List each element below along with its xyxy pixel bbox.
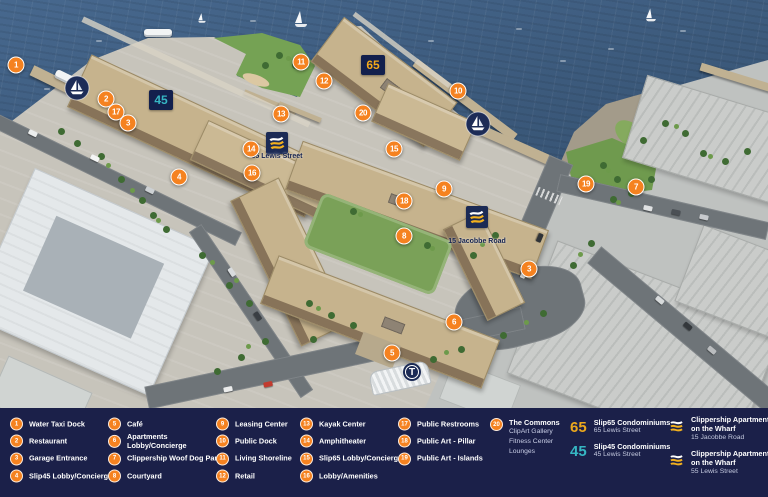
legend-label: Leasing Center <box>235 419 288 428</box>
legend-label: Courtyard <box>127 471 162 480</box>
marina-sailboat-badge <box>465 111 491 137</box>
label-55-lewis-street: 55 Lewis Street <box>252 153 303 160</box>
legend-number-icon: 20 <box>490 418 503 431</box>
site-map: T 55 Lewis Street 15 Jacobbe Road 4565 1… <box>0 0 768 408</box>
legend-label: The CommonsClipArt GalleryFitness Center… <box>509 418 560 457</box>
legend-item-1: 1Water Taxi Dock <box>10 418 85 431</box>
legend-item-19: 19Public Art - Islands <box>398 452 483 465</box>
wave-sparkle <box>516 28 522 30</box>
legend-label: Garage Entrance <box>29 454 87 463</box>
legend-number-icon: 3 <box>10 452 23 465</box>
legend-number-icon: 5 <box>108 418 121 431</box>
legend-label: Water Taxi Dock <box>29 419 85 428</box>
legend-number-icon: 17 <box>398 418 411 431</box>
legend-label: Lobby/Amenities <box>319 471 378 480</box>
legend-label: Restaurant <box>29 436 67 445</box>
legend-label: ApartmentsLobby/Concierge <box>127 432 187 450</box>
legend-label: Café <box>127 419 143 428</box>
clippership-entry-text: Clippership Apartmentson the Wharf15 Jac… <box>691 415 768 443</box>
legend-slip65-entry: 65 Slip65 Condominiums65 Lewis Street <box>570 418 670 436</box>
map-marker-7[interactable]: 7 <box>628 179 645 196</box>
legend-item-12: 12Retail <box>216 470 255 483</box>
legend-item-11: 11Living Shoreline <box>216 452 292 465</box>
legend-clippership-entry-1: Clippership Apartmentson the Wharf15 Jac… <box>668 415 768 443</box>
slip45-code: 45 <box>570 444 587 459</box>
wave-sparkle <box>96 40 102 42</box>
legend-label: Retail <box>235 471 255 480</box>
legend-item-7: 7Clippership Woof Dog Park <box>108 452 221 465</box>
wave-sparkle <box>428 40 434 42</box>
roof-label-65: 65 <box>361 55 385 75</box>
legend-item-14: 14Amphitheater <box>300 435 366 448</box>
legend-number-icon: 10 <box>216 435 229 448</box>
clippership-entry-text: Clippership Apartmentson the Wharf55 Lew… <box>691 449 768 477</box>
site-plan-page: T 55 Lewis Street 15 Jacobbe Road 4565 1… <box>0 0 768 497</box>
legend-number-icon: 9 <box>216 418 229 431</box>
legend-label: Slip65 Lobby/Concierge <box>319 454 402 463</box>
legend-label: Clippership Woof Dog Park <box>127 454 221 463</box>
wave-sparkle <box>250 20 256 22</box>
slip65-name: Slip65 Condominiums65 Lewis Street <box>594 418 671 436</box>
clippership-flag-icon <box>668 418 685 439</box>
legend-item-9: 9Leasing Center <box>216 418 288 431</box>
legend-item-2: 2Restaurant <box>10 435 67 448</box>
trees <box>0 0 5 5</box>
map-marker-9[interactable]: 9 <box>436 181 453 198</box>
legend-item-4: 4Slip45 Lobby/Concierge <box>10 470 112 483</box>
slip45-address: 45 Lewis Street <box>594 451 671 460</box>
clippership-flag-icon <box>266 132 288 154</box>
legend-item-16: 16Lobby/Amenities <box>300 470 378 483</box>
wave-sparkle <box>608 48 614 50</box>
map-marker-12[interactable]: 12 <box>316 73 333 90</box>
clippership-address: 55 Lewis Street <box>691 468 768 477</box>
map-marker-11[interactable]: 11 <box>293 54 310 71</box>
map-marker-18[interactable]: 18 <box>396 193 413 210</box>
map-marker-19[interactable]: 19 <box>578 176 595 193</box>
roof-label-45: 45 <box>149 90 173 110</box>
legend-number-icon: 12 <box>216 470 229 483</box>
legend-item-6: 6ApartmentsLobby/Concierge <box>108 432 187 450</box>
legend-item-5: 5Café <box>108 418 143 431</box>
legend-item-8: 8Courtyard <box>108 470 162 483</box>
wave-sparkle <box>680 30 686 32</box>
white-building-courtyard <box>23 216 164 339</box>
legend-item-18: 18Public Art - Pillar <box>398 435 476 448</box>
legend-label: Public Art - Pillar <box>417 436 476 445</box>
clippership-flag-icon <box>668 452 685 473</box>
map-marker-16[interactable]: 16 <box>244 165 261 182</box>
map-marker-4[interactable]: 4 <box>171 169 188 186</box>
legend-number-icon: 14 <box>300 435 313 448</box>
legend-label: Public Dock <box>235 436 277 445</box>
legend-sublabel: Lounges <box>509 447 560 457</box>
legend-slip45-entry: 45 Slip45 Condominiums45 Lewis Street <box>570 442 670 460</box>
legend-item-13: 13Kayak Center <box>300 418 366 431</box>
map-marker-5[interactable]: 5 <box>384 345 401 362</box>
map-marker-3[interactable]: 3 <box>521 261 538 278</box>
legend-number-icon: 1 <box>10 418 23 431</box>
legend-label: Living Shoreline <box>235 454 292 463</box>
legend-label: Public Restrooms <box>417 419 479 428</box>
legend-clippership-entry-2: Clippership Apartmentson the Wharf55 Lew… <box>668 449 768 477</box>
legend-number-icon: 4 <box>10 470 23 483</box>
map-marker-6[interactable]: 6 <box>446 314 463 331</box>
motorboat <box>144 29 172 37</box>
map-marker-14[interactable]: 14 <box>243 141 260 158</box>
map-marker-10[interactable]: 10 <box>450 83 467 100</box>
map-marker-20[interactable]: 20 <box>355 105 372 122</box>
legend-label: Slip45 Lobby/Concierge <box>29 471 112 480</box>
slip65-code: 65 <box>570 420 587 435</box>
legend-number-icon: 13 <box>300 418 313 431</box>
legend-item-20: 20The CommonsClipArt GalleryFitness Cent… <box>490 418 560 457</box>
map-marker-13[interactable]: 13 <box>273 106 290 123</box>
clippership-address: 15 Jacobbe Road <box>691 434 768 443</box>
t-station-letter: T <box>409 367 415 378</box>
map-marker-8[interactable]: 8 <box>396 228 413 245</box>
legend-label: Kayak Center <box>319 419 366 428</box>
legend-number-icon: 18 <box>398 435 411 448</box>
map-marker-1[interactable]: 1 <box>8 57 25 74</box>
label-15-jacobbe-road: 15 Jacobbe Road <box>448 238 506 245</box>
legend-label: Public Art - Islands <box>417 454 483 463</box>
sailboat <box>646 9 656 21</box>
legend-number-icon: 19 <box>398 452 411 465</box>
legend-item-3: 3Garage Entrance <box>10 452 87 465</box>
legend-number-icon: 7 <box>108 452 121 465</box>
legend-number-icon: 2 <box>10 435 23 448</box>
legend-bar: 1Water Taxi Dock2Restaurant3Garage Entra… <box>0 408 768 497</box>
map-marker-3[interactable]: 3 <box>120 115 137 132</box>
legend-item-17: 17Public Restrooms <box>398 418 479 431</box>
legend-number-icon: 15 <box>300 452 313 465</box>
legend-item-15: 15Slip65 Lobby/Concierge <box>300 452 402 465</box>
legend-item-10: 10Public Dock <box>216 435 277 448</box>
legend-label: Amphitheater <box>319 436 366 445</box>
clippership-flag-icon <box>466 206 488 228</box>
sailboat <box>295 11 307 27</box>
legend-number-icon: 6 <box>108 435 121 448</box>
map-marker-15[interactable]: 15 <box>386 141 403 158</box>
slip45-name: Slip45 Condominiums45 Lewis Street <box>594 442 671 460</box>
wave-sparkle <box>560 60 566 62</box>
legend-sublabel: ClipArt Gallery <box>509 427 560 437</box>
wave-sparkle <box>44 88 50 90</box>
slip65-address: 65 Lewis Street <box>594 427 671 436</box>
legend-sublabel: Fitness Center <box>509 437 560 447</box>
marina-sailboat-badge <box>64 75 90 101</box>
sailboat <box>198 13 205 22</box>
legend-number-icon: 16 <box>300 470 313 483</box>
legend-number-icon: 11 <box>216 452 229 465</box>
t-station-badge: T <box>403 363 421 381</box>
legend-number-icon: 8 <box>108 470 121 483</box>
